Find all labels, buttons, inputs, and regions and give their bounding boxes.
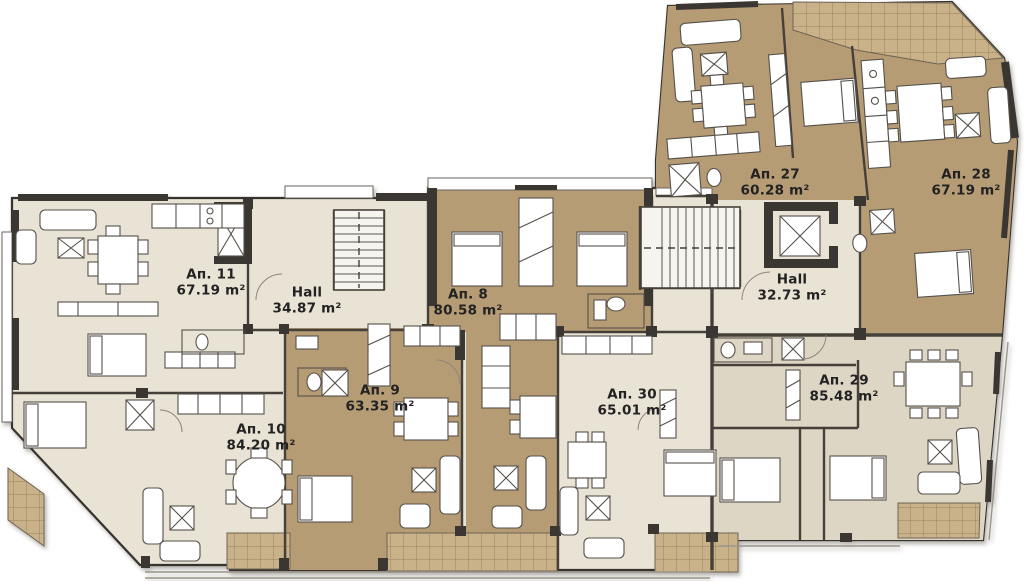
room-name: Ап. 9 [360,384,400,400]
terrace-bottom-ap30 [655,533,738,572]
balcony-strip-left [2,232,12,422]
room-area: 32.73 m² [758,288,827,304]
room-label-ap29: Ап. 29 85.48 m² [810,374,879,405]
room-area: 84.20 m² [227,438,296,454]
room-name: Hall [292,286,322,302]
room-name: Ап. 27 [750,168,800,184]
room-name: Ап. 29 [819,374,869,390]
room-label-ap30: Ап. 30 65.01 m² [598,388,667,419]
room-label-hall-right: Hall 32.73 m² [758,273,827,304]
stairwell-right [641,207,740,288]
room-label-ap10: Ап. 10 84.20 m² [227,423,296,454]
terrace-bottom-center [387,533,557,571]
floorplan-page: Ап. 11 67.19 m² Hall 34.87 m² Ап. 8 80.5… [0,0,1024,581]
room-name: Ап. 28 [941,168,991,184]
room-area: 85.48 m² [810,389,879,405]
stairwell-left [334,210,384,290]
terrace-left [8,468,44,546]
room-label-ap28: Ап. 28 67.19 m² [932,168,1001,199]
room-label-ap9: Ап. 9 63.35 m² [346,384,415,415]
room-name: Ап. 11 [186,268,236,284]
floorplan-drawing [0,0,1024,581]
room-area: 65.01 m² [598,403,667,419]
room-label-ap27: Ап. 27 60.28 m² [741,168,810,199]
building [2,2,1021,578]
room-area: 67.19 m² [177,283,246,299]
room-area: 60.28 m² [741,183,810,199]
room-area: 67.19 m² [932,183,1001,199]
room-name: Ап. 8 [448,288,488,304]
room-name: Ап. 10 [236,423,286,439]
room-area: 34.87 m² [273,301,342,317]
room-name: Hall [777,273,807,289]
room-label-ap8: Ап. 8 80.58 m² [434,288,503,319]
room-label-ap11: Ап. 11 67.19 m² [177,268,246,299]
room-area: 80.58 m² [434,303,503,319]
balcony-strip-hall-top [285,186,373,198]
room-label-hall-left: Hall 34.87 m² [273,286,342,317]
room-area: 63.35 m² [346,399,415,415]
terrace-bottom-right [898,503,980,538]
room-name: Ап. 30 [607,388,657,404]
